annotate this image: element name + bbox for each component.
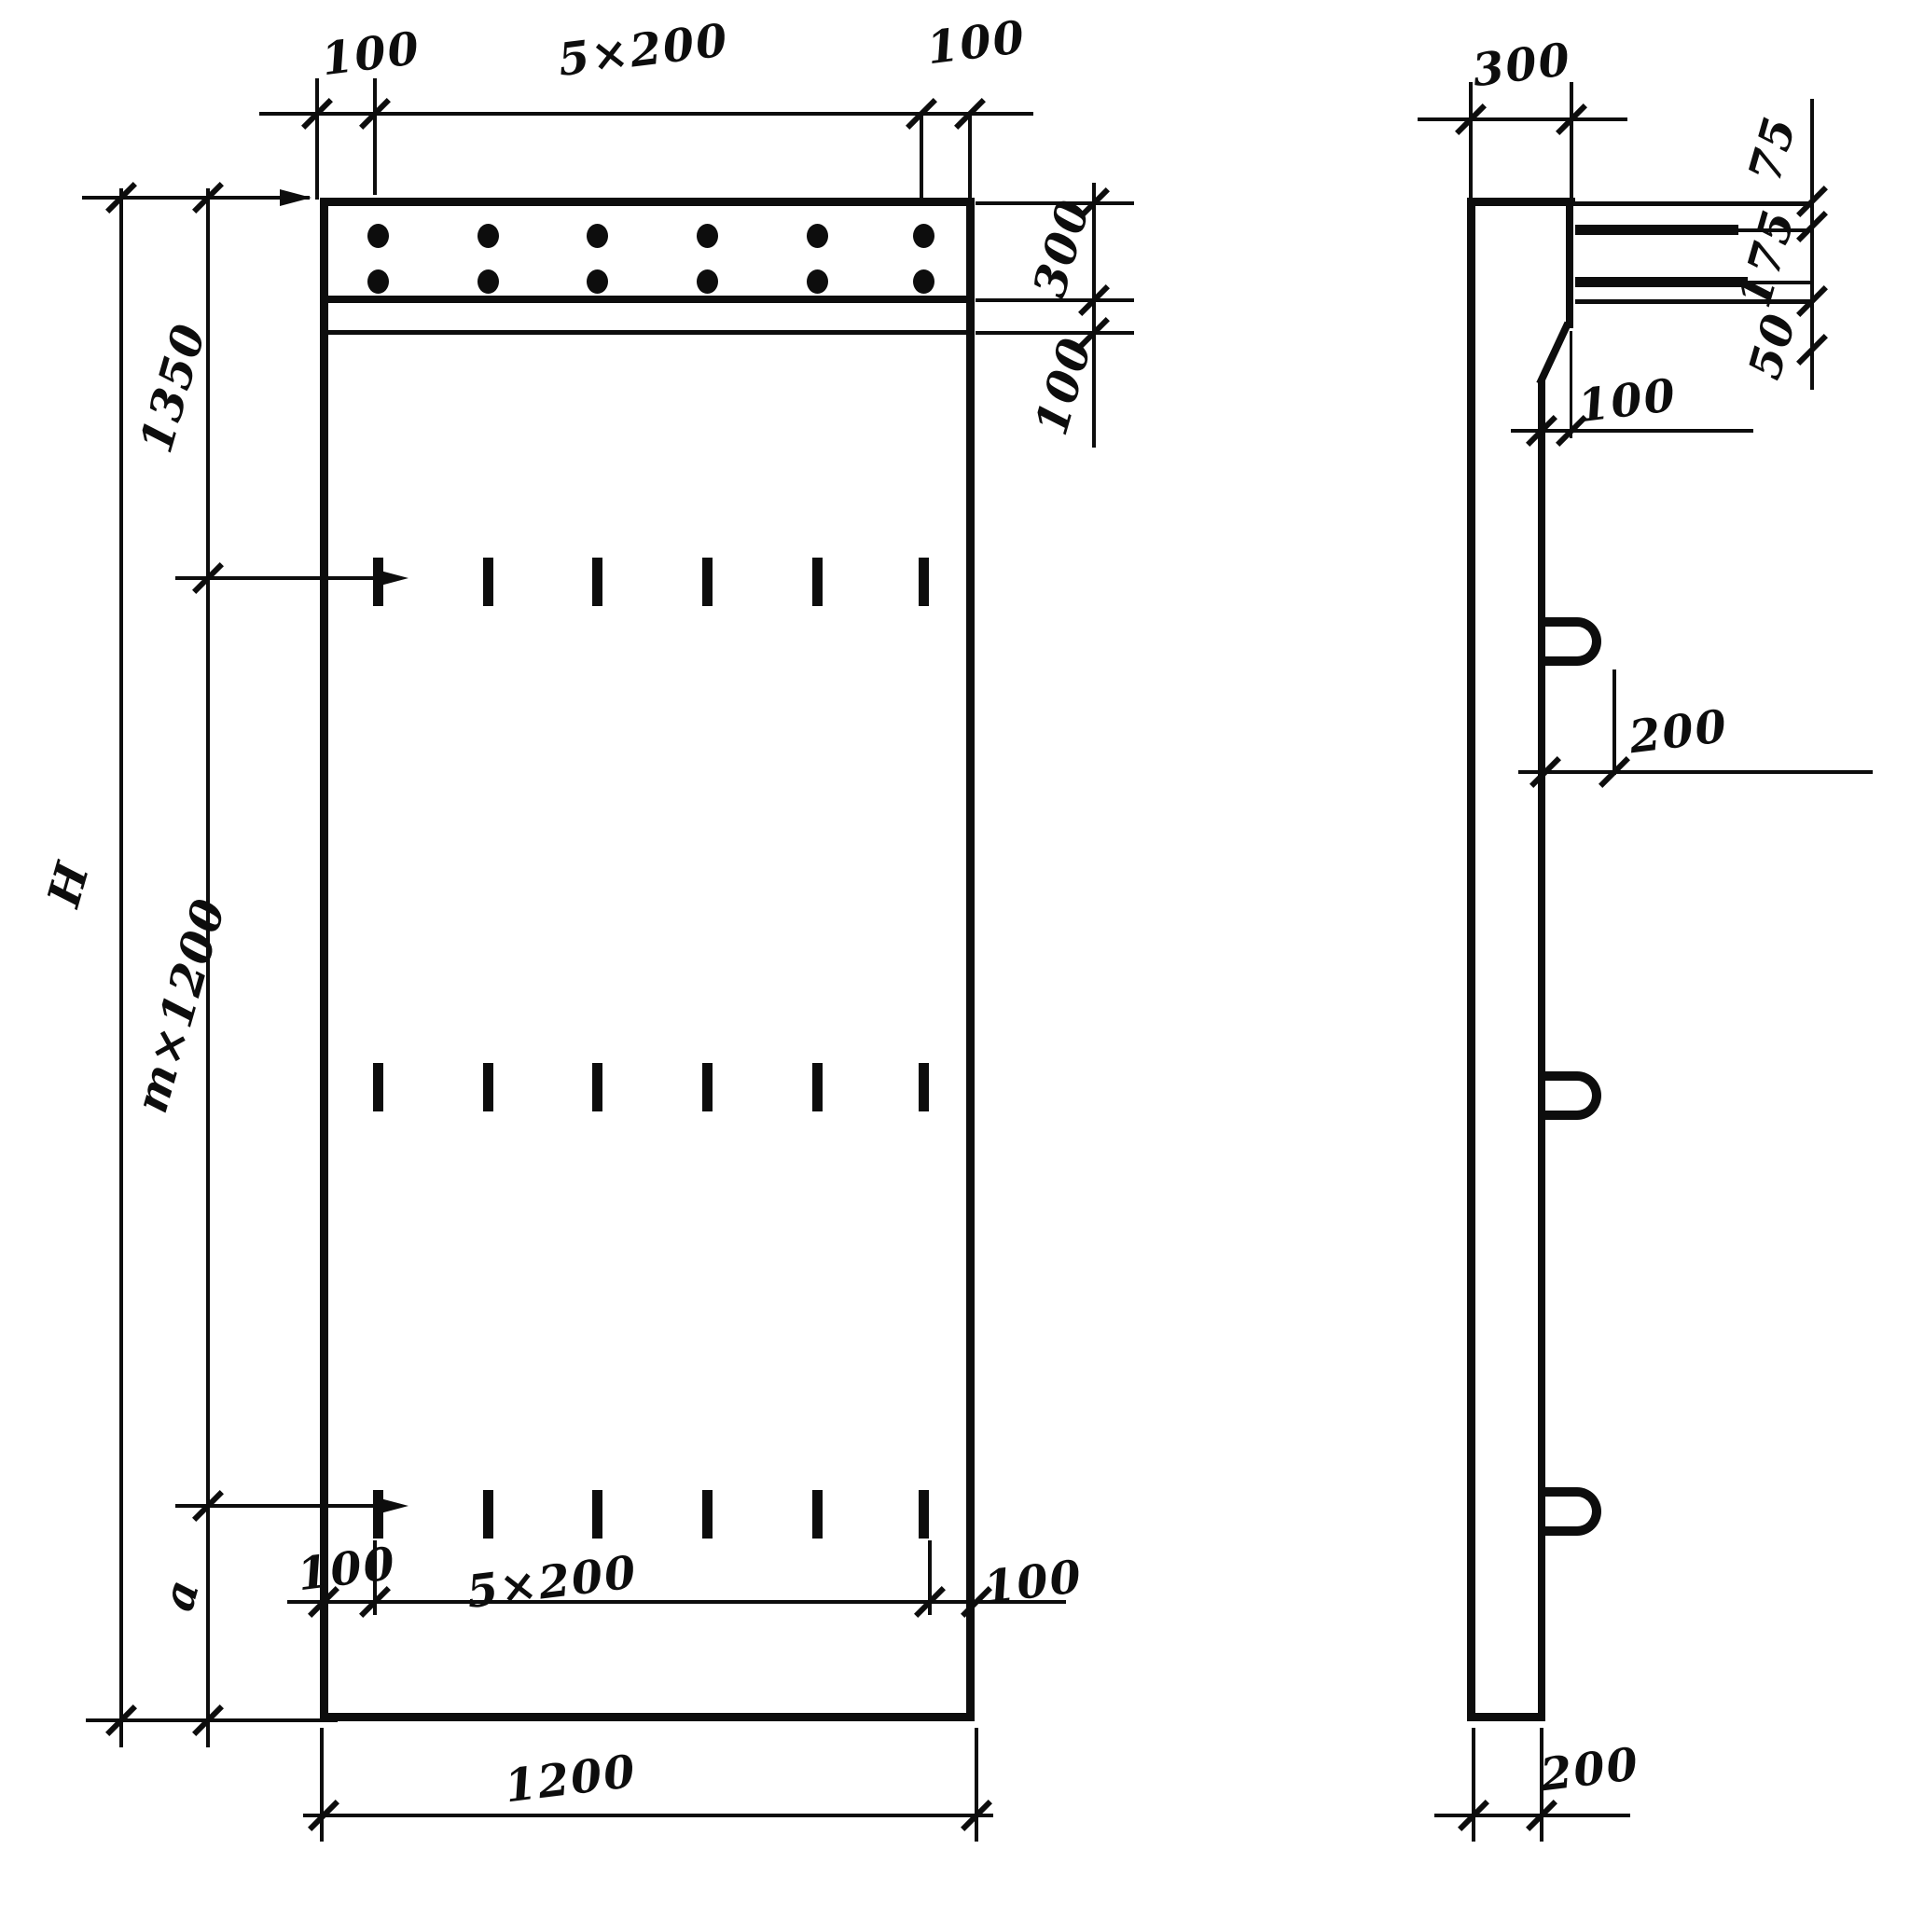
dim-label-chamfer-offset: 100 xyxy=(1575,369,1680,434)
extension-line xyxy=(315,78,319,200)
dim-label-top-thickness: 300 xyxy=(1470,34,1574,98)
slot-mark xyxy=(812,558,823,606)
anchor-dot xyxy=(913,269,934,294)
dim-label-top-spacing: 5×200 xyxy=(555,14,731,87)
extension-line xyxy=(1612,669,1616,775)
rebar-bar xyxy=(1575,225,1738,235)
dim-label-bar-top-offset: 75 xyxy=(1738,110,1806,187)
extension-line xyxy=(1472,1728,1475,1842)
anchor-dot xyxy=(697,224,718,248)
dim-label-loop-projection: 200 xyxy=(1626,700,1731,765)
anchor-dot xyxy=(807,224,828,248)
side-left-edge xyxy=(1467,198,1475,1721)
side-top-edge xyxy=(1467,198,1575,206)
dimension-line xyxy=(1518,770,1873,774)
extension-line xyxy=(976,298,1134,302)
extension-line xyxy=(968,112,972,200)
leader-arrow xyxy=(280,189,311,206)
side-right-edge-upper xyxy=(1566,198,1573,328)
slot-mark xyxy=(919,1490,929,1539)
slot-mark xyxy=(483,1063,493,1111)
strip-bottom-line xyxy=(320,330,975,335)
panel-left-edge xyxy=(320,198,328,1721)
dim-label-bottom-segment: a xyxy=(152,1572,211,1616)
slot-mark xyxy=(702,1490,713,1539)
band-bottom-line xyxy=(320,296,975,303)
dim-label-top-segment: 1350 xyxy=(131,317,217,459)
slot-mark xyxy=(592,558,602,606)
slot-mark xyxy=(592,1063,602,1111)
dimension-line xyxy=(1434,1814,1630,1817)
lifting-loop xyxy=(1540,617,1601,666)
slot-mark xyxy=(592,1490,602,1539)
extension-line xyxy=(1570,331,1572,438)
extension-line xyxy=(1570,82,1573,198)
anchor-dot xyxy=(367,224,389,248)
dimension-line xyxy=(1511,429,1753,433)
dim-label-panel-width: 1200 xyxy=(502,1746,639,1814)
slot-mark xyxy=(702,558,713,606)
slot-mark xyxy=(919,1063,929,1111)
panel-right-edge xyxy=(966,198,975,1721)
panel-top-edge xyxy=(320,198,975,206)
extension-line xyxy=(975,1728,978,1842)
dim-label-top-left-margin: 100 xyxy=(319,22,423,87)
extension-line xyxy=(920,112,923,200)
anchor-dot xyxy=(587,269,608,294)
slot-mark xyxy=(812,1490,823,1539)
dim-label-bottom-right-margin: 100 xyxy=(981,1551,1086,1615)
slot-mark xyxy=(373,1063,383,1111)
side-bottom-edge xyxy=(1467,1713,1545,1721)
dimension-line-total-height xyxy=(119,188,123,1747)
panel-bottom-edge xyxy=(320,1713,975,1721)
leader-arrow xyxy=(377,570,408,586)
engineering-drawing-sheet: 100 5×200 100 300 100 H 1350 m×1200 a xyxy=(0,0,1910,1932)
anchor-dot xyxy=(697,269,718,294)
anchor-dot xyxy=(913,224,934,248)
rebar-line xyxy=(1575,201,1810,206)
dimension-line xyxy=(1418,117,1627,121)
anchor-dot xyxy=(477,224,499,248)
dim-label-bar-bottom-gap: 50 xyxy=(1738,307,1806,384)
extension-line xyxy=(320,1728,324,1842)
dim-label-bar-middle-gap: 175 xyxy=(1728,203,1806,313)
dim-label-top-right-margin: 100 xyxy=(924,11,1029,76)
anchor-dot xyxy=(807,269,828,294)
dim-label-total-height: H xyxy=(38,856,101,913)
anchor-dot xyxy=(477,269,499,294)
extension-line xyxy=(373,78,377,195)
dimension-line xyxy=(287,1600,1066,1604)
anchor-dot xyxy=(367,269,389,294)
slot-mark xyxy=(702,1063,713,1111)
rebar-bar xyxy=(1575,277,1748,287)
dim-label-band-height: 300 xyxy=(1023,193,1100,303)
dim-label-middle-segment: m×1200 xyxy=(125,892,236,1119)
side-chamfer xyxy=(1536,322,1571,386)
slot-mark xyxy=(483,1490,493,1539)
anchor-dot xyxy=(587,224,608,248)
slot-mark xyxy=(483,558,493,606)
leader-arrow xyxy=(377,1497,408,1514)
lifting-loop xyxy=(1540,1487,1601,1536)
extension-line xyxy=(1469,82,1473,198)
lifting-loop xyxy=(1540,1071,1601,1120)
slot-mark xyxy=(919,558,929,606)
dim-label-stem-thickness: 200 xyxy=(1538,1738,1642,1802)
slot-mark xyxy=(812,1063,823,1111)
dim-label-bottom-spacing: 5×200 xyxy=(464,1546,640,1619)
dimension-line xyxy=(303,1814,993,1817)
